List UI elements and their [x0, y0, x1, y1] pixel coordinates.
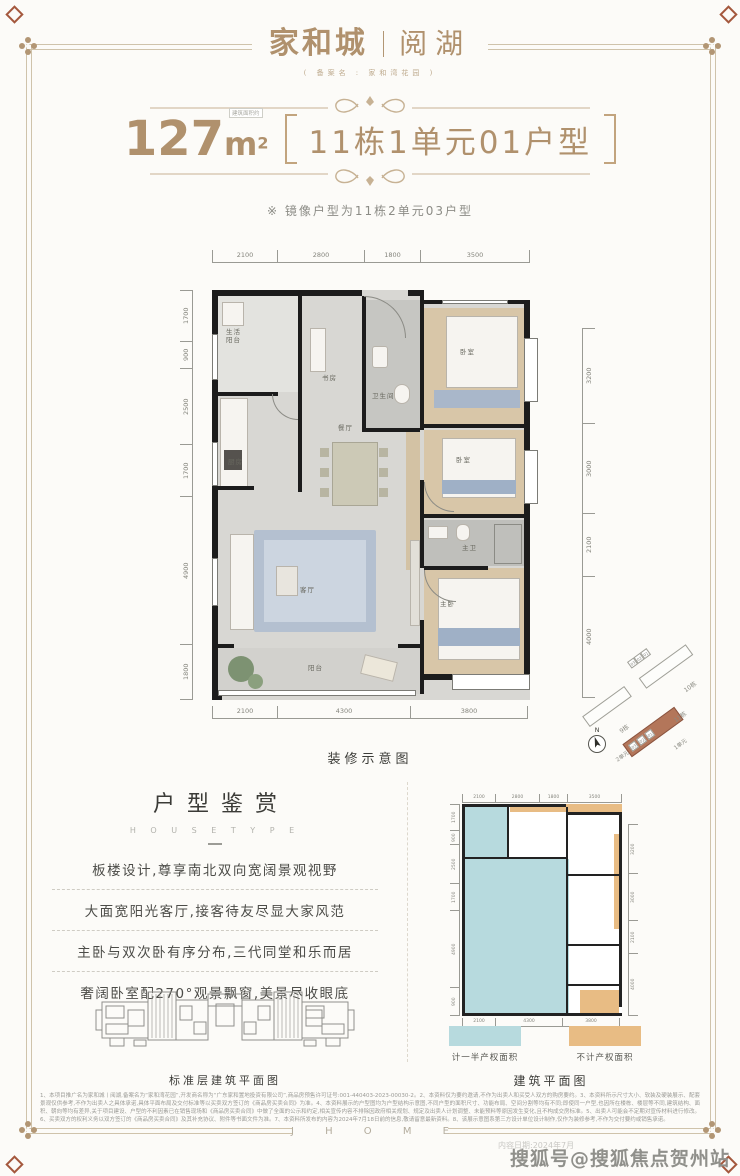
floorplate-drawing [90, 982, 360, 1062]
appreciation-title: 户型鉴赏 [40, 786, 390, 818]
building-label: 9栋 [617, 722, 630, 735]
legend-item-excluded-area: 不计产权面积 [560, 1026, 650, 1063]
compass-n-label: N [587, 726, 607, 734]
legend-label: 计一半产权面积 [440, 1051, 530, 1063]
unit-label: 1单元 [672, 737, 688, 752]
column-separator [407, 782, 408, 1062]
area-unit: m [224, 125, 257, 163]
building-label: 10栋 [682, 679, 698, 694]
point-separator [52, 889, 378, 890]
construction-body [462, 804, 622, 1016]
selling-point: 大面宽阳光客厅,接客待友尽显大家风范 [40, 900, 390, 920]
room-label: 主卫 [462, 544, 477, 552]
compass-icon [587, 734, 607, 754]
point-separator [52, 971, 378, 972]
footer-brand: J H O M E [0, 1126, 740, 1137]
flourish-divider-icon [150, 168, 590, 190]
logo-record-name: ( 备案名 : 家和湾花园 ) [0, 68, 740, 78]
construction-dims-top: 2100280018003500 [462, 794, 622, 803]
construction-plan: 2100280018003500 210043003800 1700900250… [428, 778, 674, 1024]
mirror-note: ※ 镜像户型为11栋2单元03户型 [0, 202, 740, 219]
main-floorplan: 2100280018003500 210043003800 1700900250… [150, 238, 610, 720]
legend-item-half-area: 计一半产权面积 [440, 1026, 530, 1063]
room-label: 卧室 [456, 456, 471, 464]
appreciation-subtitle: H O U S E T Y P E [40, 826, 390, 835]
room-label: 主卧 [440, 600, 455, 608]
left-bracket [285, 114, 297, 164]
logo-sub-text: 阅湖 [399, 27, 471, 60]
room-label: 餐厅 [338, 424, 353, 432]
sofa [230, 534, 254, 630]
compass: N [587, 726, 607, 758]
room-label: 卧室 [460, 348, 475, 356]
room-label: 阳台 [308, 664, 323, 672]
construction-dims-right: 3200300021004000 [628, 824, 638, 1016]
room-label: 书房 [322, 374, 337, 382]
room-label: 厨房 [228, 458, 243, 466]
floorplan-dims-left: 17009002500170049001800 [180, 290, 193, 700]
plant-icon [248, 674, 263, 689]
point-separator [52, 930, 378, 931]
construction-caption: 建筑平面图 [428, 1072, 674, 1089]
logo: 家和城 阅湖 ( 备案名 : 家和湾花园 ) [0, 18, 740, 78]
block-label-group: 11栋1单元01户型 [285, 114, 617, 164]
room-label: 客厅 [300, 586, 315, 594]
legend-swatch-blue [449, 1026, 521, 1046]
watermark-text: 搜狐号@搜狐焦点贺州站 [510, 1144, 730, 1171]
legend-swatch-orange [569, 1026, 641, 1046]
construction-dims-left: 1700900250017004900900 [450, 804, 460, 1016]
floorplan-body: 生活阳台 厨房 书房 卫生间 卧室 餐厅 卧室 主卫 客厅 主卧 阳台 [212, 290, 530, 700]
floorplate-caption: 标准层建筑平面图 [60, 1072, 390, 1088]
selling-point: 主卧与双次卧有序分布,三代同堂和乐而居 [40, 941, 390, 961]
unit-title: 127m2 建筑面积约 11栋1单元01户型 [0, 110, 740, 168]
room-label: 生活阳台 [226, 328, 244, 344]
area-superscript: 2 [257, 134, 268, 153]
legend-label: 不计产权面积 [560, 1051, 650, 1063]
disclaimer-text: 1、本项目推广名为家和城丨阅湖,备案名为“家和湾花园”,开发商名称为“广东家和置… [40, 1092, 700, 1124]
block-label: 11栋1单元01户型 [297, 117, 605, 162]
bed [446, 316, 518, 388]
site-map: 030201 10栋 9栋 030201 11栋 2单元 1单元 N [585, 640, 733, 768]
corner-ornament-icon [5, 1155, 23, 1173]
appreciation-section: 户型鉴赏 H O U S E T Y P E 板楼设计,尊享南北双向宽阔景观视野… [40, 786, 390, 1002]
area-tag: 建筑面积约 [229, 108, 263, 118]
room-label: 卫生间 [372, 392, 395, 400]
poster-page: 家和城 阅湖 ( 备案名 : 家和湾花园 ) 127m2 建筑面积约 11栋1单… [0, 0, 740, 1176]
floorplan-dims-top: 2100280018003500 [212, 250, 530, 263]
small-dash [208, 843, 222, 845]
area-number: 127 [124, 111, 224, 167]
right-bracket [604, 114, 616, 164]
selling-point: 板楼设计,尊享南北双向宽阔景观视野 [40, 859, 390, 879]
floorplan-dims-bottom: 210043003800 [212, 706, 528, 719]
logo-main-text: 家和城 [269, 26, 368, 61]
area-figure: 127m2 建筑面积约 [124, 111, 269, 167]
unit-label: 2单元 [614, 749, 630, 764]
logo-divider [383, 31, 384, 57]
unit-chips: 030201 [622, 641, 653, 670]
